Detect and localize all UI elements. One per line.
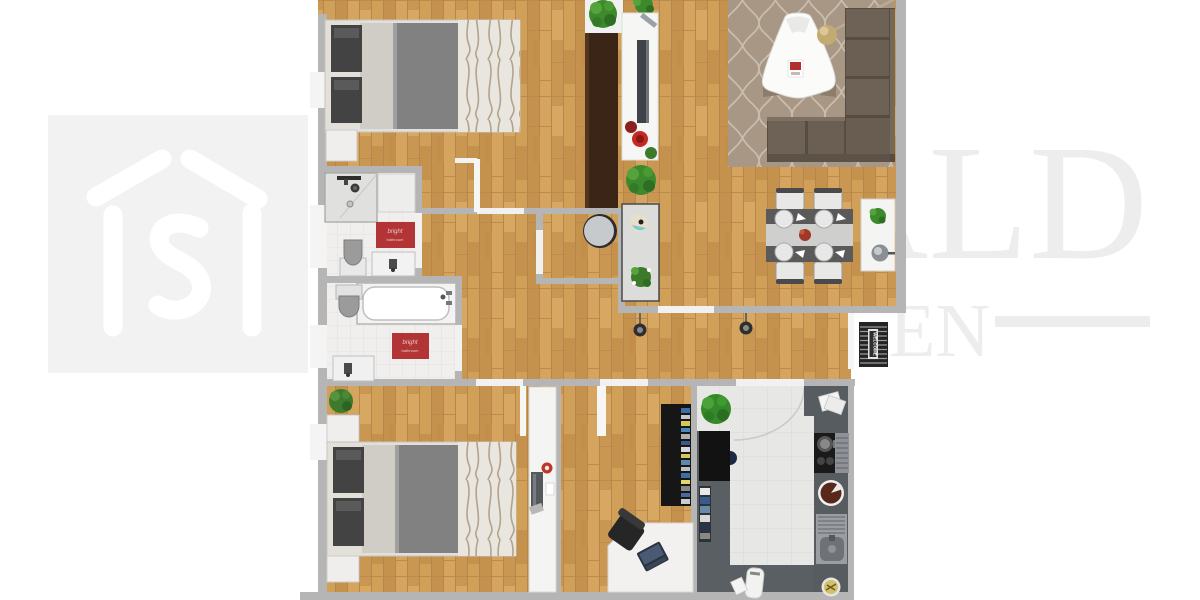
svg-text:bright: bright: [402, 340, 417, 346]
svg-text:bathroom: bathroom: [387, 237, 405, 242]
svg-text:bathroom: bathroom: [402, 348, 420, 353]
svg-text:WELCOME: WELCOME: [873, 332, 878, 356]
svg-text:bright: bright: [387, 229, 402, 235]
